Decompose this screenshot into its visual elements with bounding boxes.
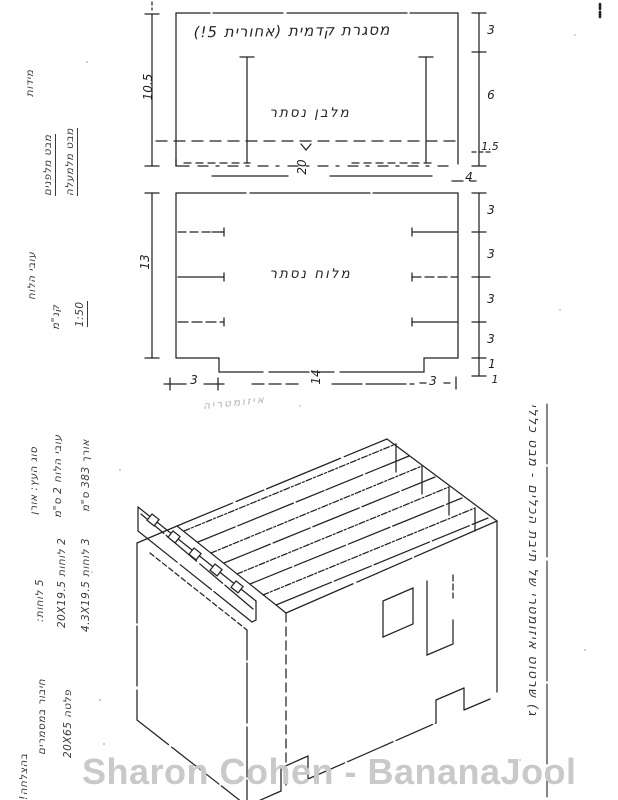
right-margin-title: ג) שרטוט איזומטרי של תיבת הכלים - מבט כל…: [526, 404, 541, 717]
iso-linework: [137, 439, 497, 800]
watermark-text: Sharon Cohen - BananaJool: [82, 751, 577, 793]
top-plan-dim-bottom-right: 4: [462, 170, 476, 184]
note-views-1: מידות: [24, 70, 36, 97]
top-plan-dim-right-top: 3: [482, 23, 500, 37]
note-plate: פלטה 20X65: [62, 690, 74, 758]
middle-plan-dim-right-4: 3: [483, 332, 499, 346]
note-wood-length: אורך 383 ס"מ: [80, 439, 92, 512]
middle-plan-linework: [145, 193, 490, 390]
note-scale-word: קנ"מ: [50, 304, 62, 330]
middle-plan-dim-right-2: 3: [483, 247, 499, 261]
top-plan-dim-right-bottom: 1.5: [477, 140, 503, 153]
note-views-3: מבט מלמעלה: [64, 128, 78, 196]
note-wood-type: סוג העץ: אורן: [28, 447, 40, 515]
top-plan-center-label: מלבן נסתר: [260, 105, 360, 121]
scanned-drawing-page: מסגרת קדמית (אחורית 5!) מלבן נסתר 10.5 3…: [0, 0, 618, 800]
middle-plan-dim-left: 13: [138, 249, 152, 275]
scan-noise: [86, 34, 586, 761]
top-plan-dim-right-middle: 6: [482, 88, 500, 102]
note-scale-value: 1:50: [74, 301, 88, 327]
note-boards-b: 3 לוחות 4.3X19.5: [80, 538, 92, 632]
note-boards-a: 2 לוחות 20X19.5: [56, 538, 68, 628]
note-end: בהצלחה!: [18, 753, 30, 800]
middle-plan-center-label: מלוח נסתר: [258, 266, 363, 282]
note-thickness: עובי הלוח: [26, 252, 38, 300]
middle-plan-dim-right-1: 3: [483, 203, 499, 217]
note-join: חיבור במסמרים: [36, 679, 48, 755]
note-views-2: מבט מלפנים: [42, 134, 56, 196]
middle-plan-dim-bottom-left: 3: [186, 373, 202, 387]
note-boards-title: 5 לוחות:: [34, 579, 46, 622]
note-wood-thickness: עובי הלוח 2 ס"מ: [52, 435, 64, 518]
middle-plan-dim-right-5: 1: [485, 357, 499, 371]
middle-plan-dim-bottom-center: 14: [309, 364, 323, 390]
middle-plan-dim-corner: 1: [489, 373, 501, 386]
top-plan-dim-bottom-width: 20: [295, 155, 309, 179]
top-plan-dim-left: 10.5: [141, 72, 155, 102]
top-plan-title: מסגרת קדמית (אחורית 5!): [186, 21, 398, 42]
middle-plan-dim-right-3: 3: [483, 292, 499, 306]
middle-plan-dim-bottom-right: 3: [425, 374, 441, 388]
